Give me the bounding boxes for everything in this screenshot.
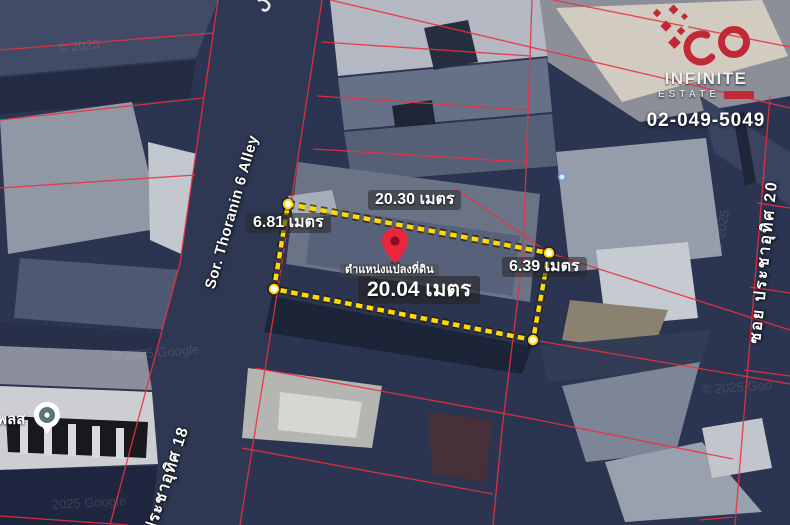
infinite-estate-logo: INFINITE ESTATE 02-049-5049: [626, 4, 786, 132]
brand-subname: ESTATE: [658, 89, 720, 100]
satellite-map-canvas: © 2025 © 2025 Google © 2025 Goo 2025 Goo…: [0, 0, 790, 525]
place-marker-icon: [28, 398, 98, 443]
measurement-label-right: 6.39 เมตร: [502, 257, 587, 277]
infinity-logo-icon: [626, 4, 786, 70]
brand-phone-number: 02-049-5049: [626, 110, 786, 132]
measurement-label-top: 20.30 เมตร: [368, 190, 461, 210]
place-name-label: เพลส: [0, 407, 25, 431]
pin-caption-label: ตำแหน่งแปลงที่ดิน: [340, 264, 439, 277]
measurement-label-bottom: 20.04 เมตร: [358, 276, 480, 304]
brand-tagline-box: [724, 91, 754, 99]
rooftop-blue-dot: [559, 174, 566, 181]
watermark-text: © 2025 Goo: [701, 377, 772, 397]
brand-name: INFINITE: [626, 69, 786, 89]
measurement-label-left: 6.81 เมตร: [246, 213, 331, 233]
